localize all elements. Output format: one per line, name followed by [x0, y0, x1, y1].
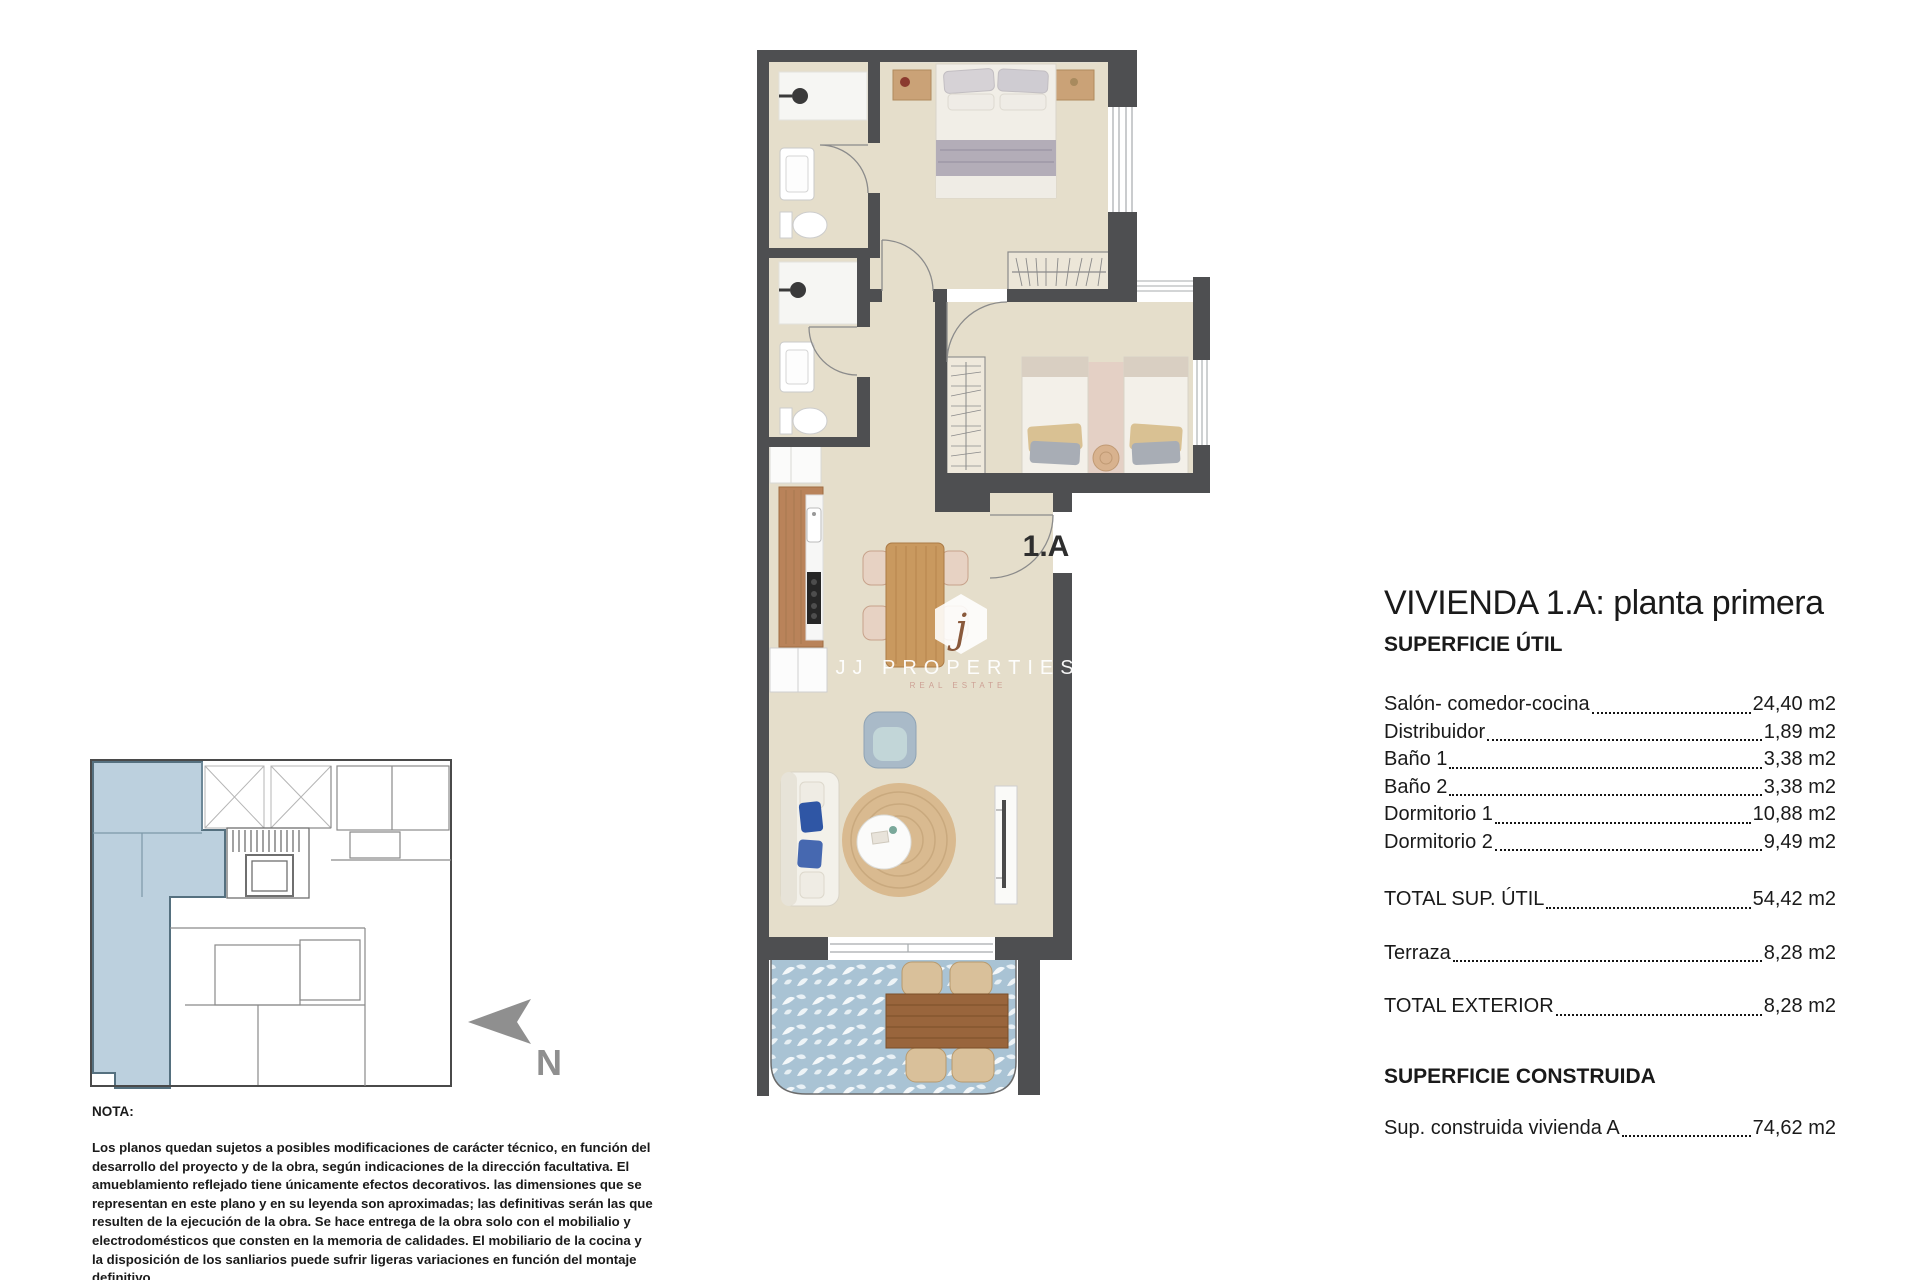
surface-panel: VIVIENDA 1.A: planta primera SUPERFICIE … [1384, 584, 1836, 1142]
tv [1002, 800, 1006, 888]
room-value: 3,38 m2 [1764, 774, 1836, 802]
construida-value: 74,62 m2 [1753, 1115, 1836, 1143]
unit-label: 1.A [1023, 530, 1070, 563]
room-row: Baño 1 3,38 m2 [1384, 746, 1836, 774]
dotted-leader [1546, 907, 1750, 909]
dotted-leader [1495, 849, 1762, 851]
room-value: 1,89 m2 [1764, 719, 1836, 747]
shower-head-icon [792, 88, 808, 104]
total-exterior-row: TOTAL EXTERIOR 8,28 m2 [1384, 993, 1836, 1021]
note-block: NOTA: Los planos quedan sujetos a posibl… [92, 1104, 654, 1280]
room-row: Salón- comedor-cocina 24,40 m2 [1384, 691, 1836, 719]
north-label: N [536, 1042, 562, 1083]
watermark-name: JJ PROPERTIES [835, 657, 1080, 679]
page-title: VIVIENDA 1.A: planta primera [1384, 584, 1836, 623]
other-units [170, 766, 451, 1086]
toilet [780, 408, 792, 434]
total-util-value: 54,42 m2 [1753, 886, 1836, 914]
room-row: Dormitorio 1 10,88 m2 [1384, 801, 1836, 829]
dotted-leader [1622, 1135, 1751, 1137]
room-row: Baño 2 3,38 m2 [1384, 774, 1836, 802]
sliding-door [828, 937, 995, 960]
laundry-cabinet [770, 443, 821, 483]
room-value: 9,49 m2 [1764, 829, 1836, 857]
toilet [780, 212, 792, 238]
watermark-tagline: REAL ESTATE [910, 681, 1007, 690]
kitchen [770, 443, 827, 692]
room-value: 3,38 m2 [1764, 746, 1836, 774]
room-label: Baño 2 [1384, 774, 1447, 802]
patios [205, 766, 331, 828]
superficie-construida-heading: SUPERFICIE CONSTRUIDA [1384, 1065, 1836, 1089]
terraza-value: 8,28 m2 [1764, 940, 1836, 968]
north-arrow-icon [468, 999, 531, 1044]
wicker-chair [950, 962, 992, 996]
dining-table [886, 543, 944, 667]
dotted-leader [1556, 1014, 1762, 1016]
room-label: Dormitorio 2 [1384, 829, 1493, 857]
total-exterior-value: 8,28 m2 [1764, 993, 1836, 1021]
nightstand [893, 70, 931, 100]
total-util-row: TOTAL SUP. ÚTIL 54,42 m2 [1384, 886, 1836, 914]
main-floor-plan: 1.A j JJ PROPERTIES REAL ESTATE [755, 40, 1217, 1115]
room-value: 24,40 m2 [1753, 691, 1836, 719]
note-body: Los planos quedan sujetos a posibles mod… [92, 1139, 654, 1280]
note-heading: NOTA: [92, 1104, 654, 1119]
wicker-chair [952, 1048, 994, 1082]
shower-head-icon [790, 282, 806, 298]
terraza-row: Terraza 8,28 m2 [1384, 940, 1836, 968]
room-row: Distribuidor 1,89 m2 [1384, 719, 1836, 747]
room-label: Salón- comedor-cocina [1384, 691, 1590, 719]
wicker-chair [902, 962, 942, 996]
dotted-leader [1453, 960, 1762, 962]
stool [1093, 445, 1119, 471]
stair-core [227, 828, 309, 898]
construida-label: Sup. construida vivienda A [1384, 1115, 1620, 1143]
construida-row: Sup. construida vivienda A 74,62 m2 [1384, 1115, 1836, 1143]
room-label: Dormitorio 1 [1384, 801, 1493, 829]
total-exterior-label: TOTAL EXTERIOR [1384, 993, 1554, 1021]
terrace-table [886, 994, 1008, 1048]
dotted-leader [1592, 712, 1751, 714]
room-label: Baño 1 [1384, 746, 1447, 774]
chair [941, 551, 968, 585]
dotted-leader [1449, 767, 1761, 769]
superficie-util-heading: SUPERFICIE ÚTIL [1384, 633, 1836, 657]
room-row: Dormitorio 2 9,49 m2 [1384, 829, 1836, 857]
key-plan: N [85, 748, 577, 1110]
dotted-leader [1487, 739, 1762, 741]
wicker-chair [906, 1048, 946, 1082]
terraza-label: Terraza [1384, 940, 1451, 968]
total-util-label: TOTAL SUP. ÚTIL [1384, 886, 1544, 914]
floorplan-page: 1.A j JJ PROPERTIES REAL ESTATE [0, 0, 1920, 1280]
bedroom-2 [947, 357, 1188, 475]
dotted-leader [1495, 822, 1751, 824]
room-value: 10,88 m2 [1753, 801, 1836, 829]
dotted-leader [1449, 794, 1761, 796]
room-label: Distribuidor [1384, 719, 1485, 747]
north-arrow: N [468, 999, 562, 1083]
